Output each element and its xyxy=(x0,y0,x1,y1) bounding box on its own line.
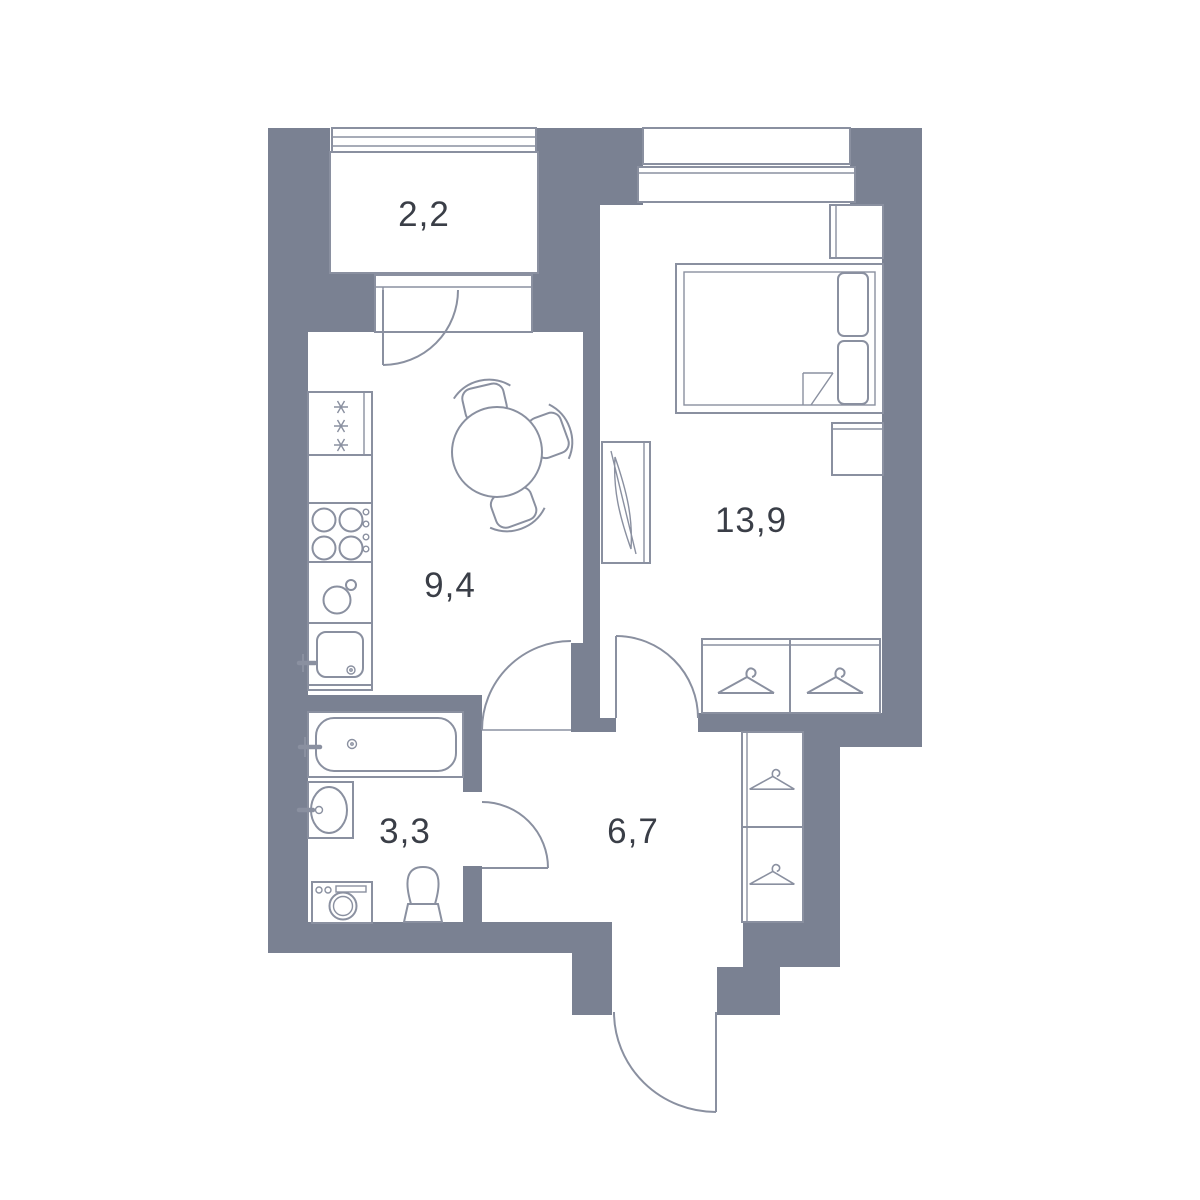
hallway xyxy=(614,732,803,1112)
kitchen xyxy=(299,374,580,730)
bedroom xyxy=(602,205,883,718)
room-label-hallway: 6,7 xyxy=(607,812,659,851)
nightstand-top xyxy=(830,205,883,258)
bedroom-window xyxy=(638,128,855,202)
nightstand-bottom xyxy=(832,423,883,475)
bedroom-window-outer xyxy=(643,128,850,164)
bedroom-wardrobe xyxy=(702,639,880,713)
balcony-door-unit xyxy=(375,275,532,365)
bathroom-door-swing-arc xyxy=(482,802,548,868)
floor-plan-page: 2,2 9,4 13,9 3,3 6,7 xyxy=(0,0,1200,1200)
wall-right-connector xyxy=(840,732,922,747)
washing-machine xyxy=(312,882,372,923)
kitchen-door-swing-arc xyxy=(482,641,571,730)
bathtub xyxy=(300,712,463,777)
dining-set xyxy=(451,374,579,538)
entrance-door-swing-arc xyxy=(614,1012,716,1112)
wall-kitchen-bedroom-divider xyxy=(583,332,600,643)
wall-bath-right-lower xyxy=(463,866,482,924)
toilet xyxy=(404,867,442,922)
bedroom-door-swing-arc xyxy=(616,636,698,718)
floor-plan-drawing: 2,2 9,4 13,9 3,3 6,7 xyxy=(0,0,1200,1200)
room-label-kitchen: 9,4 xyxy=(424,566,476,605)
entrance-doorway xyxy=(614,1012,716,1112)
bed xyxy=(676,264,883,413)
wall-bottom-left xyxy=(268,922,612,953)
wall-right-outer xyxy=(882,205,922,747)
wall-bedroom-bottom xyxy=(698,713,882,732)
kitchen-doorway xyxy=(482,641,571,730)
bedroom-doorway xyxy=(616,636,698,718)
wall-below-hall-wardrobe xyxy=(743,922,840,967)
wall-divider-stub-foot xyxy=(571,718,616,732)
wall-bedroom-window-right xyxy=(850,128,922,205)
kitchen-sink xyxy=(299,623,372,685)
room-label-balcony: 2,2 xyxy=(398,195,450,234)
wall-entrance-left-jamb xyxy=(572,953,612,1015)
stove xyxy=(308,503,372,562)
wall-bedroom-window-left xyxy=(600,128,643,205)
refrigerator xyxy=(308,392,372,455)
wall-left-main xyxy=(268,330,308,953)
wall-divider-stub xyxy=(571,643,600,718)
wall-balcony-bedroom-corner xyxy=(530,128,600,332)
wall-left-top xyxy=(268,128,330,278)
bedroom-window-sill xyxy=(638,167,855,202)
washbasin xyxy=(299,782,353,838)
hallway-wardrobe xyxy=(742,732,803,922)
bathroom-doorway xyxy=(482,802,548,868)
pillow xyxy=(838,273,868,336)
room-label-bedroom: 13,9 xyxy=(715,501,787,540)
wall-entrance-right-jamb xyxy=(717,967,780,1015)
balcony-glazing xyxy=(332,128,536,154)
dining-table xyxy=(452,407,542,497)
room-label-bathroom: 3,3 xyxy=(379,812,431,851)
wall-under-balcony xyxy=(268,273,378,332)
tv-stand xyxy=(602,442,650,563)
wall-bath-right-upper xyxy=(463,708,482,792)
pillow xyxy=(838,341,868,404)
wall-kitchen-bath-divider xyxy=(268,695,482,711)
